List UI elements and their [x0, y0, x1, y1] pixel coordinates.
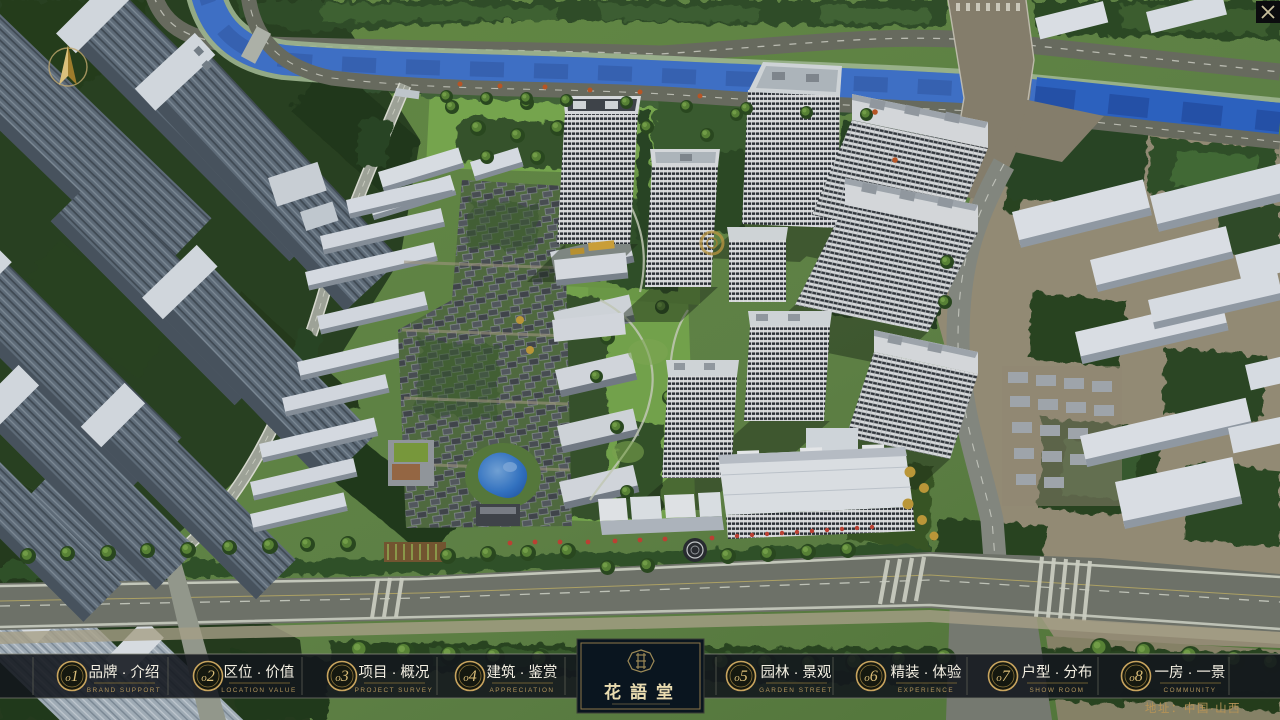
- svg-text:APPRECIATION: APPRECIATION: [489, 687, 554, 694]
- svg-text:精装 · 体验: 精装 · 体验: [891, 664, 962, 681]
- svg-text:EXPERIENCE: EXPERIENCE: [898, 687, 954, 694]
- svg-text:SHOW ROOM: SHOW ROOM: [1029, 687, 1084, 694]
- svg-text:一房 · 一景: 一房 · 一景: [1155, 664, 1226, 681]
- svg-text:BRAND SUPPORT: BRAND SUPPORT: [87, 687, 161, 694]
- svg-text:LOCATION VALUE: LOCATION VALUE: [221, 687, 296, 694]
- svg-text:项目 · 概况: 项目 · 概况: [359, 664, 430, 681]
- svg-text:品牌 · 介绍: 品牌 · 介绍: [89, 664, 160, 681]
- svg-text:区位 · 价值: 区位 · 价值: [224, 664, 295, 681]
- svg-text:花語堂: 花語堂: [604, 682, 682, 702]
- svg-text:园林 · 景观: 园林 · 景观: [761, 664, 832, 681]
- svg-text:PROJECT SURVEY: PROJECT SURVEY: [355, 687, 434, 694]
- svg-text:户型 · 分布: 户型 · 分布: [1022, 664, 1093, 681]
- svg-text:GARDEN STREET: GARDEN STREET: [759, 687, 833, 694]
- svg-text:COMMUNITY: COMMUNITY: [1164, 687, 1217, 694]
- svg-text:建筑 · 鉴赏: 建筑 · 鉴赏: [487, 664, 558, 681]
- svg-text:地址：中国·山西: 地址：中国·山西: [1145, 701, 1241, 715]
